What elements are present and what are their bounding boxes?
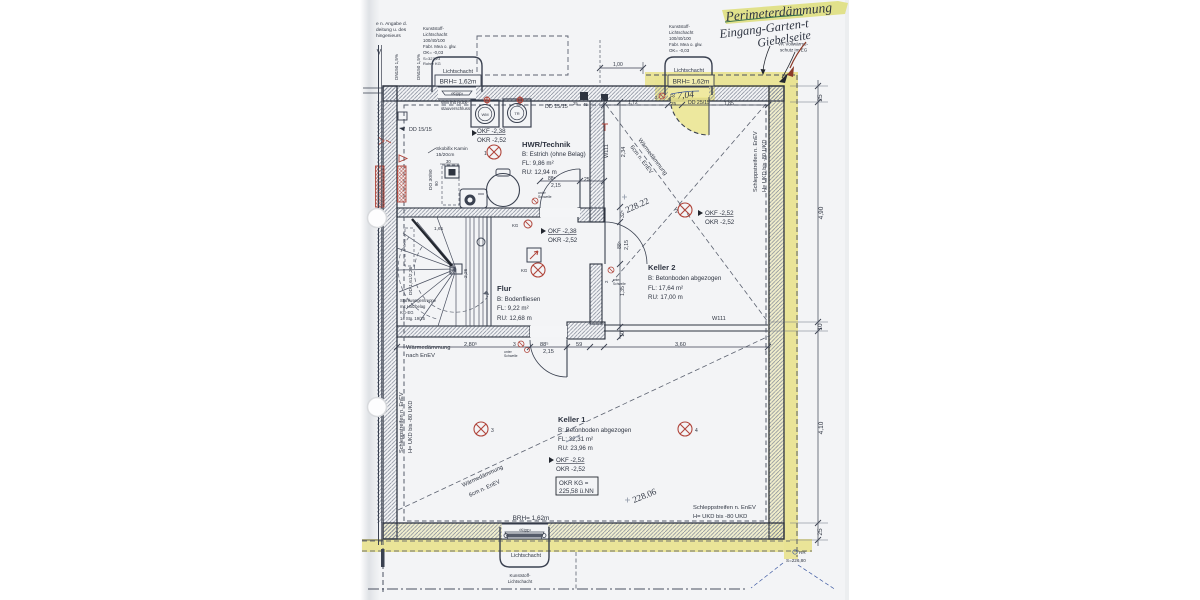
svg-text:88⁵: 88⁵ <box>548 176 556 182</box>
svg-text:‹Kipp›: ‹Kipp› <box>451 91 464 96</box>
svg-text:1,85: 1,85 <box>724 101 734 107</box>
svg-text:25: 25 <box>584 177 590 183</box>
svg-text:‹Kipp›: ‹Kipp› <box>519 528 532 533</box>
svg-text:OKF -2,38: OKF -2,38 <box>477 128 506 135</box>
svg-text:Schleppstreifen n. EnEV: Schleppstreifen n. EnEV <box>693 505 756 511</box>
svg-text:30: 30 <box>446 159 451 164</box>
svg-text:RR: RR <box>799 550 806 555</box>
svg-text:Kunststoff-: Kunststoff- <box>669 24 690 29</box>
svg-text:nach EnEV: nach EnEV <box>406 353 435 359</box>
svg-text:Schwelle: Schwelle <box>504 354 518 358</box>
svg-text:TR: TR <box>514 111 519 116</box>
svg-text:B: Betonboden abgezogen: B: Betonboden abgezogen <box>648 275 722 282</box>
svg-text:B: Bodenfliesen: B: Bodenfliesen <box>497 296 541 303</box>
svg-text:1: 1 <box>484 151 487 157</box>
svg-text:25: 25 <box>817 94 824 102</box>
svg-text:32⁵: 32⁵ <box>620 210 626 218</box>
svg-text:Lichtschacht: Lichtschacht <box>508 579 533 584</box>
svg-text:10: 10 <box>620 331 626 337</box>
svg-text:mit Holzbelag: mit Holzbelag <box>400 304 426 309</box>
svg-text:Lichtschacht: Lichtschacht <box>423 32 448 37</box>
svg-text:OK= -0,03: OK= -0,03 <box>423 50 444 55</box>
svg-text:B: Estrich (ohne Belag): B: Estrich (ohne Belag) <box>522 151 586 158</box>
svg-text:OKR -2,52: OKR -2,52 <box>705 219 735 226</box>
svg-text:OKR -2,52: OKR -2,52 <box>548 237 578 244</box>
svg-text:1,00: 1,00 <box>613 62 623 68</box>
svg-text:2,80⁵: 2,80⁵ <box>464 341 477 348</box>
svg-text:Wärmedämmung: Wärmedämmung <box>406 345 450 351</box>
svg-text:hingenieurs: hingenieurs <box>376 33 401 39</box>
svg-text:25: 25 <box>573 101 578 106</box>
svg-text:Kunststoff-: Kunststoff- <box>423 26 444 31</box>
svg-text:1,61: 1,61 <box>434 226 444 232</box>
svg-text:4: 4 <box>695 428 698 434</box>
svg-text:Fabr. Mea o. glw.: Fabr. Mea o. glw. <box>423 44 456 49</box>
svg-text:Schwelle: Schwelle <box>613 282 626 286</box>
svg-text:DD 15/15: DD 15/15 <box>545 104 568 110</box>
svg-text:Lichtschacht: Lichtschacht <box>443 69 473 75</box>
svg-text:25: 25 <box>817 528 824 536</box>
svg-text:RU: 23,96 m: RU: 23,96 m <box>558 445 593 452</box>
svg-text:RU: 12,68 m: RU: 12,68 m <box>497 315 532 322</box>
svg-text:Lichtschacht: Lichtschacht <box>674 68 704 74</box>
svg-text:stauverschluss: stauverschluss <box>441 106 471 111</box>
svg-text:15/20cm: 15/20cm <box>436 152 454 158</box>
svg-text:2,15: 2,15 <box>543 349 554 355</box>
svg-text:schutz im EG: schutz im EG <box>780 48 808 53</box>
svg-text:14 Stg. 19/25: 14 Stg. 19/25 <box>400 316 426 321</box>
svg-text:DD 1,61/2,26: DD 1,61/2,26 <box>408 266 414 295</box>
svg-text:BRH= 1,62m: BRH= 1,62m <box>440 79 477 86</box>
svg-text:45: 45 <box>583 102 588 107</box>
svg-text:KG: KG <box>512 223 519 228</box>
svg-text:225,58 ü.NN: 225,58 ü.NN <box>559 488 594 495</box>
svg-text:KG: KG <box>521 268 528 273</box>
svg-text:10: 10 <box>817 323 824 331</box>
svg-text:OKF -2,38: OKF -2,38 <box>548 228 577 235</box>
svg-text:Skobifix Kamin: Skobifix Kamin <box>436 146 468 152</box>
svg-text:Fabr. Mea o. glw.: Fabr. Mea o. glw. <box>669 42 702 47</box>
svg-text:Kunststoff-: Kunststoff- <box>510 573 531 578</box>
svg-text:100/40/100: 100/40/100 <box>423 38 446 43</box>
svg-text:2,34: 2,34 <box>621 147 627 158</box>
svg-text:DN150 1,5%: DN150 1,5% <box>394 54 399 80</box>
svg-text:Keller 2: Keller 2 <box>648 263 675 272</box>
svg-text:4,10: 4,10 <box>818 421 825 434</box>
svg-text:Lichtschacht: Lichtschacht <box>669 30 694 35</box>
svg-text:BRH= 1,62m: BRH= 1,62m <box>513 515 550 522</box>
svg-text:59: 59 <box>576 342 582 348</box>
svg-text:88⁵: 88⁵ <box>617 241 623 249</box>
svg-text:RU: 17,00 m: RU: 17,00 m <box>648 294 683 301</box>
svg-text:H= UKD bis -80 UKD: H= UKD bis -80 UKD <box>693 514 747 520</box>
svg-text:3,60: 3,60 <box>675 342 686 348</box>
svg-text:Flur: Flur <box>497 284 511 293</box>
svg-text:e n. Angabe d.: e n. Angabe d. <box>376 21 407 27</box>
svg-text:WM: WM <box>481 112 488 117</box>
svg-text:2,15: 2,15 <box>624 240 630 250</box>
svg-text:H= UKD bis -80 UKD: H= UKD bis -80 UKD <box>408 401 414 453</box>
svg-text:Lichtschacht: Lichtschacht <box>511 553 541 559</box>
svg-text:2,15: 2,15 <box>551 183 561 189</box>
svg-text:Schleppstreifen n. EnEV: Schleppstreifen n. EnEV <box>399 392 405 453</box>
svg-text:BRH= 1,62m: BRH= 1,62m <box>673 79 710 86</box>
svg-text:100/40/100: 100/40/100 <box>669 36 692 41</box>
svg-text:DD 25/15: DD 25/15 <box>688 100 710 106</box>
svg-text:WM mit Rück-: WM mit Rück- <box>441 100 469 105</box>
svg-text:W111: W111 <box>712 316 726 322</box>
svg-text:OKF -2,52: OKF -2,52 <box>705 210 734 217</box>
svg-text:FL: 9,86 m²: FL: 9,86 m² <box>522 160 554 167</box>
svg-text:2,26: 2,26 <box>463 268 469 278</box>
svg-text:DD 15/15: DD 15/15 <box>409 127 432 133</box>
svg-text:1,35: 1,35 <box>620 286 626 296</box>
svg-text:90: 90 <box>434 181 439 186</box>
svg-text:Stahlwangentreppe: Stahlwangentreppe <box>400 298 437 303</box>
svg-text:S=226,80: S=226,80 <box>786 558 806 563</box>
svg-text:88⁵: 88⁵ <box>540 341 549 348</box>
svg-text:W111: W111 <box>604 144 610 158</box>
svg-text:2: 2 <box>675 209 678 215</box>
svg-text:DN150 1,5%: DN150 1,5% <box>416 54 421 80</box>
svg-text:Rohre KG: Rohre KG <box>423 61 441 66</box>
svg-text:1,72: 1,72 <box>628 100 638 106</box>
svg-text:OKR -2,52: OKR -2,52 <box>477 137 507 144</box>
svg-text:FL: 9,22 m²: FL: 9,22 m² <box>497 305 529 312</box>
svg-text:KG-EG: KG-EG <box>400 310 414 315</box>
svg-text:OK= -0,03: OK= -0,03 <box>669 48 690 53</box>
svg-text:H= UKD bis -80 UKD: H= UKD bis -80 UKD <box>762 140 768 192</box>
svg-text:3: 3 <box>491 428 494 434</box>
svg-text:OKR KG =: OKR KG = <box>559 480 589 487</box>
svg-text:FL: 17,64 m²: FL: 17,64 m² <box>648 285 683 292</box>
svg-text:B: Betonboden abgezogen: B: Betonboden abgezogen <box>558 427 632 434</box>
svg-text:RU: 12,94 m: RU: 12,94 m <box>522 169 557 176</box>
svg-text:Keller 1: Keller 1 <box>558 415 586 424</box>
svg-text:HWR/Technik: HWR/Technik <box>522 140 571 149</box>
svg-text:Schleppstreifen n. EnEV: Schleppstreifen n. EnEV <box>753 131 759 192</box>
svg-text:OKR -2,52: OKR -2,52 <box>556 466 586 473</box>
svg-text:OKF -2,52: OKF -2,52 <box>556 457 585 464</box>
svg-text:Schwelle: Schwelle <box>538 195 552 199</box>
svg-text:deitung u. des: deitung u. des <box>376 27 407 33</box>
svg-text:3: 3 <box>513 342 516 348</box>
svg-text:4,90: 4,90 <box>818 206 825 219</box>
